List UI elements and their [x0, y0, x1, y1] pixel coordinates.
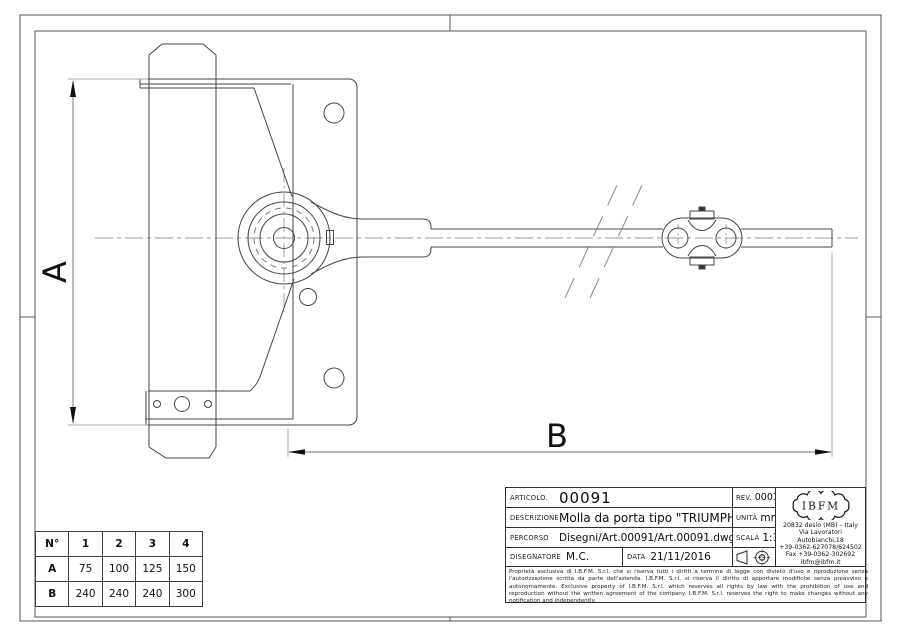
- scala-cell: SCALA 1:1: [733, 528, 776, 548]
- address-line: Via Lavoratori Autobianchi,18: [778, 529, 863, 544]
- table-cell: A: [36, 557, 69, 582]
- table-header-cell: 2: [102, 532, 135, 557]
- disegnatore-cell: DISEGNATORE M.C.: [506, 548, 623, 567]
- mounting-bracket: [140, 79, 357, 425]
- drawing-sheet: A B N° 1 2 3 4 A 75 100 125 150 B: [0, 0, 900, 635]
- centerlines: [95, 168, 858, 312]
- hub: [238, 192, 334, 306]
- rev-value: 0001: [755, 492, 776, 503]
- disegnatore-value: M.C.: [566, 551, 589, 563]
- unita-value: mm: [760, 512, 776, 524]
- data-cell: DATA 21/11/2016: [623, 548, 733, 567]
- table-header-cell: N°: [36, 532, 69, 557]
- descrizione-label: DESCRIZIONE: [510, 514, 554, 522]
- base-hole-center: [175, 397, 190, 412]
- table-row-header: N° 1 2 3 4: [36, 532, 203, 557]
- rev-cell: REV. 0001: [733, 488, 776, 508]
- descrizione-cell: DESCRIZIONE Molla da porta tipo "TRIUMPH…: [506, 508, 733, 528]
- percorso-cell: PERCORSO Disegni/Art.00091/Art.00091.dwg: [506, 528, 733, 548]
- table-cell: B: [36, 582, 69, 607]
- plate-hole-bottom: [324, 368, 344, 388]
- table-header-cell: 3: [136, 532, 169, 557]
- spring-tube: [149, 44, 216, 458]
- ibfm-logo: IBFM: [778, 491, 864, 520]
- hub-lower-hole: [300, 289, 317, 306]
- table-header-cell: 1: [69, 532, 102, 557]
- clamp-nub-top: [699, 207, 705, 211]
- disclaimer: Proprietà esclusiva di I.B.F.M. S.r.l. c…: [506, 567, 871, 606]
- scala-value: 1:1: [762, 532, 776, 544]
- base-hole-small-right: [205, 401, 212, 408]
- size-table: N° 1 2 3 4 A 75 100 125 150 B 240 240 24…: [35, 531, 203, 607]
- company-cell: IBFM 20832 desio (MB) – Italy Via Lavora…: [776, 488, 865, 567]
- dimension-a-label: A: [36, 261, 74, 283]
- table-header-cell: 4: [169, 532, 202, 557]
- unita-cell: UNITÀ mm: [733, 508, 776, 528]
- rev-label: REV.: [736, 494, 752, 502]
- articolo-cell: ARTICOLO. 00091: [506, 488, 733, 508]
- dimension-a: A: [36, 79, 148, 425]
- address-line: +39-0362-627078/624502: [778, 544, 863, 551]
- projection-symbol-cell: [733, 548, 776, 567]
- ibfm-logo-text: IBFM: [801, 499, 839, 512]
- break-lines: [565, 183, 643, 298]
- table-cell: 240: [69, 582, 102, 607]
- disclaimer-english: Exclusive property of I.B.F.M. S.r.l. wh…: [509, 584, 868, 605]
- table-cell: 100: [102, 557, 135, 582]
- table-cell: 125: [136, 557, 169, 582]
- address-line: ibfm@ibfm.it: [778, 559, 863, 566]
- table-cell: 240: [102, 582, 135, 607]
- table-row-a: A 75 100 125 150: [36, 557, 203, 582]
- scala-label: SCALA: [736, 534, 759, 542]
- address-line: Fax +39-0362-302692: [778, 551, 863, 558]
- dimension-b-label: B: [546, 417, 568, 455]
- percorso-value: Disegni/Art.00091/Art.00091.dwg: [559, 532, 733, 544]
- table-cell: 300: [169, 582, 202, 607]
- base-hole-small-left: [154, 401, 161, 408]
- company-address: 20832 desio (MB) – Italy Via Lavoratori …: [778, 522, 863, 566]
- percorso-label: PERCORSO: [510, 534, 554, 542]
- dimension-b: B: [288, 252, 832, 457]
- table-cell: 150: [169, 557, 202, 582]
- data-label: DATA: [627, 553, 645, 561]
- disegnatore-label: DISEGNATORE: [510, 553, 561, 561]
- unita-label: UNITÀ: [736, 514, 757, 522]
- articolo-label: ARTICOLO.: [510, 494, 554, 502]
- table-row-b: B 240 240 240 300: [36, 582, 203, 607]
- table-cell: 75: [69, 557, 102, 582]
- descrizione-value: Molla da porta tipo "TRIUMPH": [559, 511, 733, 525]
- first-angle-projection-icon: [734, 549, 775, 566]
- data-value: 21/11/2016: [650, 551, 711, 563]
- table-cell: 240: [136, 582, 169, 607]
- clamp-nub-bottom: [699, 265, 705, 269]
- title-block: ARTICOLO. 00091 REV. 0001 DESCRIZIONE Mo…: [505, 487, 866, 603]
- articolo-value: 00091: [559, 489, 612, 507]
- address-line: 20832 desio (MB) – Italy: [778, 522, 863, 529]
- plate-hole-top: [324, 103, 344, 123]
